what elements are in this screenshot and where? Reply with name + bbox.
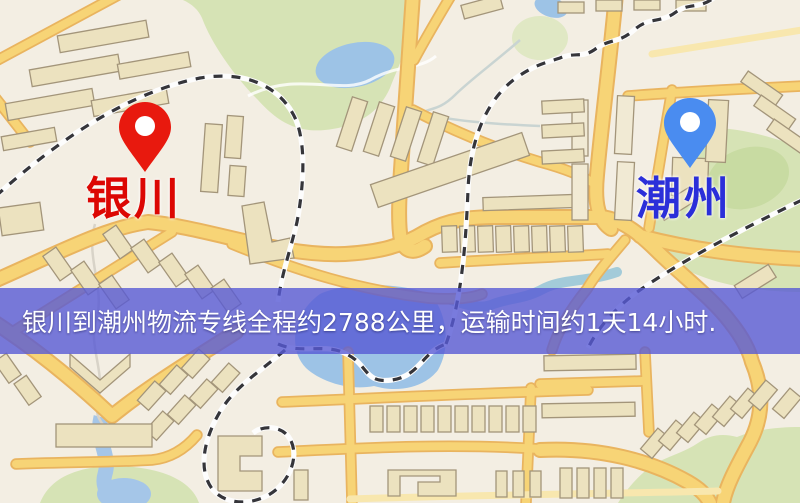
origin-city-label: 银川: [86, 176, 182, 221]
route-info-banner: 银川到潮州物流专线全程约2788公里，运输时间约1天14小时.: [0, 288, 800, 354]
map-background: [0, 0, 800, 503]
destination-pin-icon: [662, 97, 718, 169]
logistics-route-map: 银川 潮州 银川到潮州物流专线全程约2788公里，运输时间约1天14小时.: [0, 0, 800, 503]
origin-pin-icon: [117, 101, 173, 173]
route-info-text: 银川到潮州物流专线全程约2788公里，运输时间约1天14小时.: [22, 303, 716, 339]
destination-city-label: 潮州: [636, 176, 732, 221]
